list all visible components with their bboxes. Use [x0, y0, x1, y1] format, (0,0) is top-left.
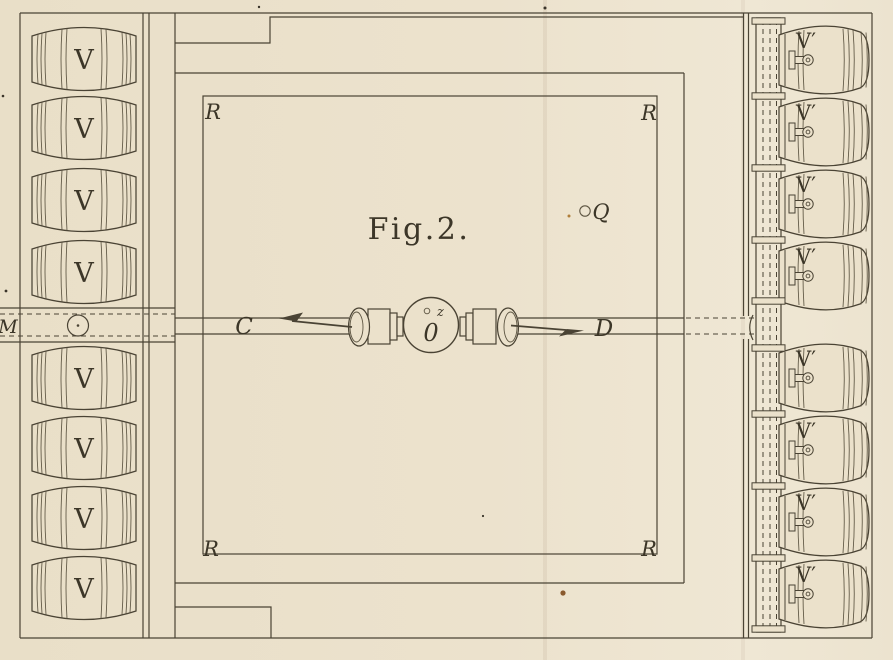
pipe-d-label: D: [594, 316, 613, 342]
duct-flange: [752, 165, 785, 171]
duct-flange: [752, 345, 785, 351]
left-barrel-label: V: [73, 258, 94, 289]
engraving-page: VVVVVVVV V′V′V′V′V′V′V′V′ RRRR Fig.2. C …: [0, 0, 893, 660]
fan-label: 0: [423, 319, 438, 347]
tap-valve: [803, 517, 813, 527]
left-barrel-label: V: [73, 364, 94, 395]
left-barrel-label: V: [73, 574, 94, 605]
duct-flange: [752, 237, 785, 243]
right-barrel-label: V′: [795, 491, 816, 515]
tap-valve: [803, 445, 813, 455]
duct-flange: [752, 555, 785, 561]
fan-orifice-label: z: [436, 305, 444, 320]
duct-flange: [752, 93, 785, 99]
right-barrel: V′: [779, 26, 869, 94]
duct-flange: [752, 298, 785, 304]
left-barrel-label: V: [73, 186, 94, 217]
tap-flange: [789, 51, 795, 69]
tap-flange: [789, 441, 795, 459]
tap-flange: [789, 123, 795, 141]
right-barrel: V′: [779, 170, 869, 238]
duct-flange: [752, 626, 785, 632]
tap-valve: [803, 127, 813, 137]
port-label: Q: [592, 200, 609, 224]
ink-speck: [568, 215, 571, 218]
tap-flange: [789, 585, 795, 603]
ink-speck: [544, 7, 547, 10]
tap-flange: [789, 267, 795, 285]
tap-valve: [803, 373, 813, 383]
duct-valve-pivot: [77, 324, 80, 327]
ink-speck: [258, 6, 260, 8]
right-barrel-label: V′: [795, 29, 816, 53]
left-barrel-label: V: [73, 45, 94, 76]
main-duct-label: M: [0, 316, 18, 338]
right-barrel: V′: [779, 242, 869, 310]
left-barrel-label: V: [73, 504, 94, 535]
ink-speck: [560, 590, 565, 595]
fold-crease-1: [543, 0, 547, 660]
right-barrel: V′: [779, 488, 869, 556]
right-barrel-label: V′: [795, 563, 816, 587]
ink-speck: [482, 515, 484, 517]
tap-valve: [803, 199, 813, 209]
ink-speck: [5, 290, 8, 293]
left-barrel-label: V: [73, 434, 94, 465]
right-collar: [473, 309, 496, 344]
right-barrel-label: V′: [795, 419, 816, 443]
duct-flange: [752, 411, 785, 417]
right-barrel-label: V′: [795, 173, 816, 197]
right-flange-b: [460, 317, 466, 336]
tap-flange: [789, 513, 795, 531]
room-corner-label: R: [640, 537, 657, 561]
room-corner-label: R: [640, 101, 657, 125]
pipe-c-label: C: [235, 314, 253, 340]
room-corner-label: R: [202, 537, 219, 561]
left-flange-a: [390, 313, 397, 340]
left-flange-b: [397, 317, 403, 336]
tap-valve: [803, 589, 813, 599]
left-collar: [368, 309, 390, 344]
ink-speck: [2, 95, 5, 98]
right-barrel: V′: [779, 416, 869, 484]
right-barrel: V′: [779, 344, 869, 412]
tap-flange: [789, 195, 795, 213]
tap-valve: [803, 271, 813, 281]
right-barrel-label: V′: [795, 101, 816, 125]
right-flange-a: [466, 313, 473, 340]
room-corner-label: R: [204, 100, 221, 124]
tap-flange: [789, 369, 795, 387]
right-barrel-label: V′: [795, 347, 816, 371]
right-barrel: V′: [779, 98, 869, 166]
figure-title: Fig.2.: [368, 212, 471, 247]
right-barrel-label: V′: [795, 245, 816, 269]
duct-flange: [752, 18, 785, 24]
left-barrel-label: V: [73, 114, 94, 145]
fig2-plan-engraving: VVVVVVVV V′V′V′V′V′V′V′V′ RRRR Fig.2. C …: [0, 0, 893, 660]
duct-flange: [752, 483, 785, 489]
tap-valve: [803, 55, 813, 65]
right-barrel: V′: [779, 560, 869, 628]
